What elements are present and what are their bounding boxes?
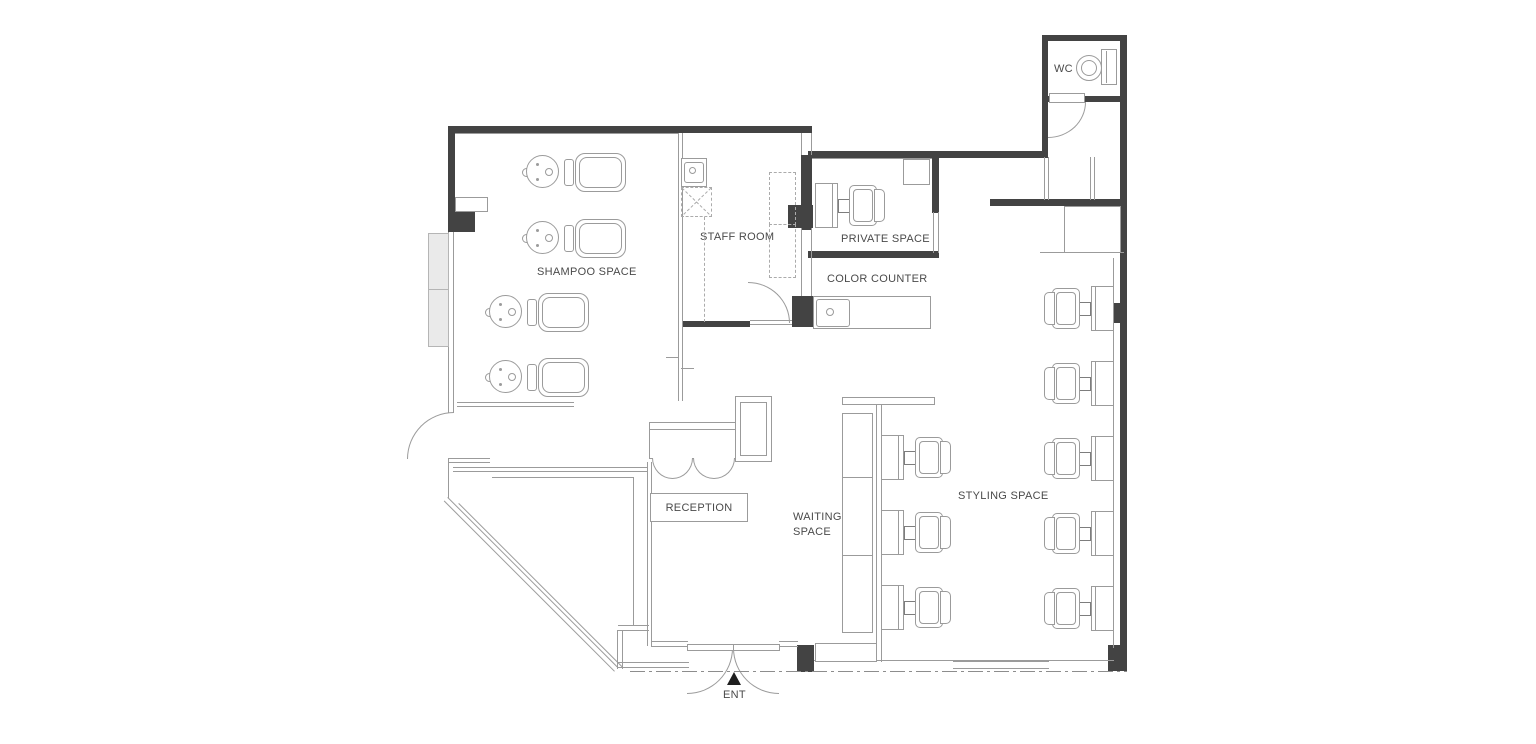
chair-connector	[1079, 452, 1091, 466]
mirror-line	[1095, 437, 1096, 480]
faucet-icon	[689, 167, 696, 174]
mirror-line	[1095, 512, 1096, 555]
partition-wall	[933, 212, 939, 253]
partition-wall	[1090, 157, 1095, 200]
wall-segment	[448, 126, 812, 133]
styling-chair-cushion	[919, 441, 939, 474]
waiting-bench	[842, 413, 873, 633]
wall-segment	[1120, 199, 1127, 671]
wall-segment	[797, 645, 814, 672]
partition-wall	[453, 467, 648, 472]
shampoo-chair-cushion	[579, 157, 622, 188]
shampoo-knob	[536, 244, 539, 247]
wall-segment	[990, 199, 1127, 206]
exterior-cabinet	[428, 233, 449, 290]
wall-line	[681, 368, 694, 369]
styling-station	[881, 435, 952, 480]
shampoo-knob	[499, 368, 502, 371]
styling-station-private	[815, 183, 886, 228]
entrance-door-leaf	[733, 644, 780, 651]
property-line	[630, 671, 1127, 672]
reception-desk	[649, 422, 737, 459]
styling-chair-cushion	[1056, 367, 1076, 400]
diagonal-wall-inner	[458, 503, 623, 668]
styling-chair-cushion	[853, 189, 873, 222]
label-waiting-line2: SPACE	[793, 526, 831, 538]
wall-line	[492, 477, 634, 478]
locker-cabinet-inner	[740, 402, 767, 456]
partition-wall	[618, 662, 689, 668]
island-base	[815, 643, 877, 662]
shampoo-bowl-icon	[526, 221, 559, 254]
partition-wall	[651, 641, 688, 647]
shampoo-headrest	[527, 299, 537, 326]
mirror-line	[1095, 587, 1096, 630]
styling-chair-cushion	[919, 516, 939, 549]
side-table	[903, 159, 930, 185]
shampoo-unit	[489, 293, 589, 333]
floor-plan-canvas: SHAMPOO SPACE STAFF ROOM PRIVATE SPACE C…	[0, 0, 1536, 744]
styling-chair-back	[940, 441, 951, 474]
shampoo-unit	[489, 358, 589, 398]
mirror-line	[1095, 362, 1096, 405]
partition-wall	[1044, 157, 1049, 200]
styling-chair-back	[940, 591, 951, 624]
styling-chair-back	[1044, 517, 1055, 550]
toilet-tank-line	[1106, 51, 1107, 83]
wall-segment	[1120, 35, 1127, 206]
label-private-space: PRIVATE SPACE	[841, 233, 930, 245]
wall-segment	[1108, 645, 1127, 671]
entrance-door-leaf	[687, 644, 734, 651]
styling-station	[1043, 511, 1114, 556]
styling-chair-back	[940, 516, 951, 549]
wall-line	[633, 477, 634, 626]
toilet-bowl-inner	[1081, 60, 1097, 76]
partition-wall	[779, 641, 798, 647]
mirror-line	[832, 184, 833, 227]
shampoo-chair-cushion	[542, 362, 585, 393]
label-waiting-line1: WAITING	[793, 511, 842, 523]
wall-line	[455, 133, 679, 134]
toilet-tank-icon	[1101, 49, 1117, 85]
styling-chair-cushion	[1056, 592, 1076, 625]
dashed-partition-line	[704, 217, 705, 322]
wall-segment	[808, 151, 1048, 158]
wall-line	[666, 357, 679, 358]
x-brace-icon	[681, 187, 712, 217]
styling-chair-back	[1044, 292, 1055, 325]
station-counter	[881, 585, 904, 630]
wall-segment	[932, 157, 939, 213]
label-color-counter: COLOR COUNTER	[827, 273, 927, 285]
shampoo-drain	[545, 234, 553, 242]
wall-segment	[792, 296, 813, 327]
island-top-counter	[842, 397, 935, 405]
styling-chair-back	[1044, 367, 1055, 400]
shampoo-knob	[499, 318, 502, 321]
shampoo-bowl-icon	[489, 360, 522, 393]
shampoo-knob	[536, 229, 539, 232]
reception-desk-edge	[650, 429, 736, 430]
entrance-arrow-icon	[727, 672, 741, 685]
shampoo-chair-cushion	[579, 223, 622, 254]
styling-chair-cushion	[1056, 292, 1076, 325]
wall-segment	[448, 126, 455, 210]
reception-label-box: RECEPTION	[650, 493, 748, 522]
chair-connector	[1079, 602, 1091, 616]
faucet-icon	[826, 308, 834, 316]
mirror-line	[898, 586, 899, 629]
label-entrance: ENT	[723, 689, 746, 701]
wall-line	[448, 458, 449, 498]
styling-station	[1043, 436, 1114, 481]
station-counter	[815, 183, 838, 228]
mirror-line	[898, 511, 899, 554]
wall-niche	[455, 197, 488, 212]
styling-station	[1043, 286, 1114, 331]
chair-connector	[1079, 527, 1091, 541]
shampoo-headrest	[564, 159, 574, 186]
dashed-shelf	[769, 224, 796, 278]
shampoo-headrest	[527, 364, 537, 391]
shampoo-knob	[536, 163, 539, 166]
label-reception: RECEPTION	[666, 502, 733, 514]
partition-wall	[801, 228, 812, 296]
bench-divider	[842, 555, 873, 556]
wc-sliding-door	[1049, 93, 1085, 103]
wall-segment	[808, 251, 939, 258]
reception-chair-arc	[652, 458, 693, 479]
shampoo-knob	[499, 303, 502, 306]
styling-station	[881, 585, 952, 630]
door-arc	[407, 412, 454, 459]
door-arc	[748, 282, 790, 323]
diagonal-wall	[444, 497, 619, 672]
styling-station	[881, 510, 952, 555]
shampoo-bowl-icon	[489, 295, 522, 328]
partition-wall	[953, 661, 1049, 669]
styling-station	[1043, 586, 1114, 631]
shampoo-knob	[499, 383, 502, 386]
dashed-shelf	[769, 172, 796, 225]
wall-segment	[683, 321, 750, 327]
shampoo-knob	[536, 178, 539, 181]
chair-connector	[1079, 377, 1091, 391]
styling-chair-back	[874, 189, 885, 222]
styling-chair-cushion	[1056, 517, 1076, 550]
styling-chair-back	[1044, 442, 1055, 475]
bench-divider	[842, 477, 873, 478]
shampoo-drain	[545, 168, 553, 176]
shampoo-chair-cushion	[542, 297, 585, 328]
styling-chair-cushion	[1056, 442, 1076, 475]
partition-wall	[647, 462, 652, 646]
exterior-cabinet	[428, 289, 449, 347]
label-shampoo-space: SHAMPOO SPACE	[537, 266, 637, 278]
shampoo-bowl-icon	[526, 155, 559, 188]
partition-wall	[801, 133, 812, 155]
partition-wall	[448, 458, 490, 463]
styling-station	[1043, 361, 1114, 406]
shampoo-unit	[526, 153, 626, 193]
shampoo-drain	[508, 308, 516, 316]
chair-connector	[1079, 302, 1091, 316]
label-staff-room: STAFF ROOM	[700, 231, 774, 243]
station-counter	[881, 435, 904, 480]
shampoo-headrest	[564, 225, 574, 252]
shampoo-drain	[508, 373, 516, 381]
shampoo-unit	[526, 219, 626, 259]
styling-chair-cushion	[919, 591, 939, 624]
label-styling-space: STYLING SPACE	[958, 490, 1049, 502]
storage-cabinet	[1064, 206, 1121, 253]
station-counter	[881, 510, 904, 555]
label-wc: WC	[1054, 63, 1073, 75]
mirror-line	[1095, 287, 1096, 330]
mirror-line	[898, 436, 899, 479]
wall-segment	[1042, 35, 1126, 41]
door-arc	[1048, 102, 1086, 138]
styling-chair-back	[1044, 592, 1055, 625]
reception-chair-arc	[693, 458, 735, 479]
partition-wall	[457, 402, 574, 407]
